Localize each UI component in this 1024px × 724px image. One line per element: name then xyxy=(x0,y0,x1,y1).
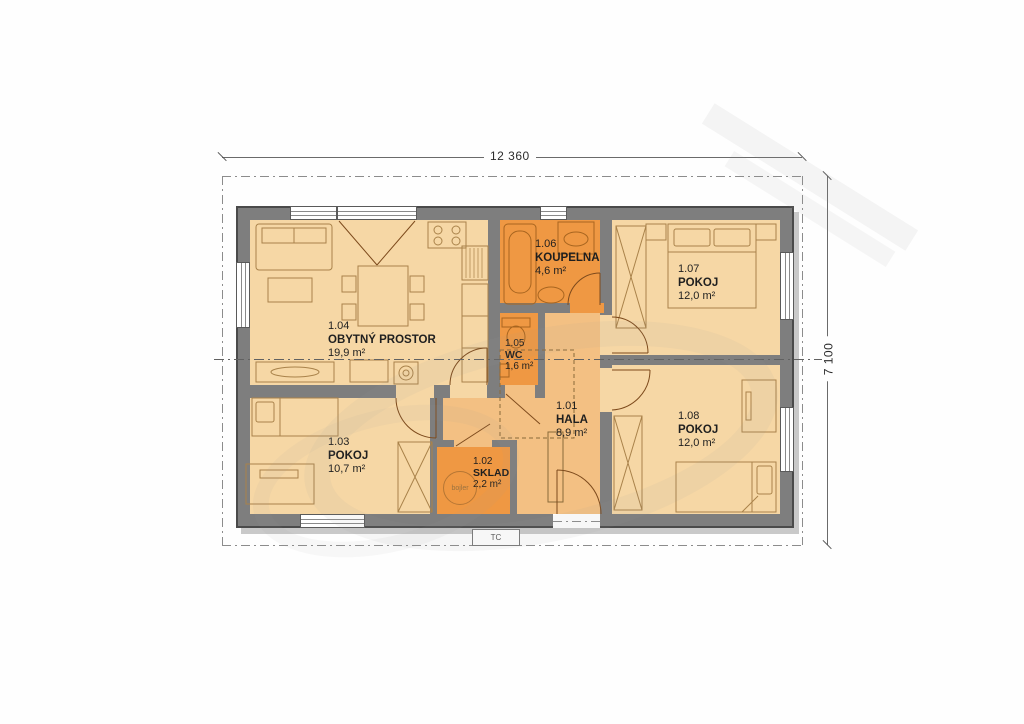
room-name: OBYTNÝ PROSTOR xyxy=(328,334,436,348)
room-area: 12,0 m² xyxy=(678,437,718,451)
room-name: SKLAD xyxy=(473,468,509,480)
doorway xyxy=(600,315,612,355)
room-area: 12,0 m² xyxy=(678,290,718,304)
boiler: bojler xyxy=(443,471,477,505)
room-hall xyxy=(517,440,600,514)
dimension-width-label: 12 360 xyxy=(484,149,536,163)
window xyxy=(780,407,794,472)
doorway xyxy=(570,303,604,313)
window xyxy=(236,262,250,328)
label-living: 1.04 OBYTNÝ PROSTOR 19,9 m² xyxy=(328,320,436,361)
room-area: 10,7 m² xyxy=(328,463,368,477)
entrance-doorway xyxy=(553,514,600,528)
window xyxy=(540,206,567,220)
room-hall xyxy=(545,313,600,398)
floor-plan: 12 360 7 100 xyxy=(0,0,1024,724)
room-name: POKOJ xyxy=(328,450,368,464)
label-storage: 1.02 SKLAD 2,2 m² xyxy=(473,456,509,491)
doorway xyxy=(450,385,487,398)
entrance-dash xyxy=(553,521,600,522)
label-wc: 1.05 WC 1,6 m² xyxy=(505,338,533,373)
label-bathroom: 1.06 KOUPELNA 4,6 m² xyxy=(535,238,600,279)
doorway xyxy=(600,368,612,412)
room-area: 8,9 m² xyxy=(556,427,588,441)
heat-pump-box: TC xyxy=(472,529,520,546)
doorway xyxy=(505,385,535,398)
room-area: 4,6 m² xyxy=(535,265,600,279)
room-number: 1.07 xyxy=(678,263,718,277)
room-area: 19,9 m² xyxy=(328,347,436,361)
room-number: 1.03 xyxy=(328,436,368,450)
window xyxy=(300,514,365,528)
french-door-glazing xyxy=(337,206,417,220)
boundary-left xyxy=(222,176,223,545)
room-name: POKOJ xyxy=(678,424,718,438)
room-area: 2,2 m² xyxy=(473,479,509,491)
room-number: 1.05 xyxy=(505,338,533,350)
label-bedroom-107: 1.07 POKOJ 12,0 m² xyxy=(678,263,718,304)
window xyxy=(290,206,337,220)
room-number: 1.01 xyxy=(556,400,588,414)
boiler-label: bojler xyxy=(451,485,468,492)
label-hall: 1.01 HALA 8,9 m² xyxy=(556,400,588,441)
room-name: HALA xyxy=(556,414,588,428)
label-bedroom-103: 1.03 POKOJ 10,7 m² xyxy=(328,436,368,477)
dimension-height-label: 7 100 xyxy=(821,337,835,382)
doorway xyxy=(396,385,434,398)
room-name: KOUPELNA xyxy=(535,252,600,266)
room-name: WC xyxy=(505,350,533,362)
room-area: 1,6 m² xyxy=(505,361,533,373)
boundary-top xyxy=(222,176,802,177)
room-number: 1.04 xyxy=(328,320,436,334)
heat-pump-label: TC xyxy=(491,533,502,542)
label-bedroom-108: 1.08 POKOJ 12,0 m² xyxy=(678,410,718,451)
boundary-right xyxy=(802,176,803,545)
room-number: 1.02 xyxy=(473,456,509,468)
room-name: POKOJ xyxy=(678,277,718,291)
window xyxy=(780,252,794,320)
room-number: 1.06 xyxy=(535,238,600,252)
doorway xyxy=(454,440,492,447)
room-number: 1.08 xyxy=(678,410,718,424)
